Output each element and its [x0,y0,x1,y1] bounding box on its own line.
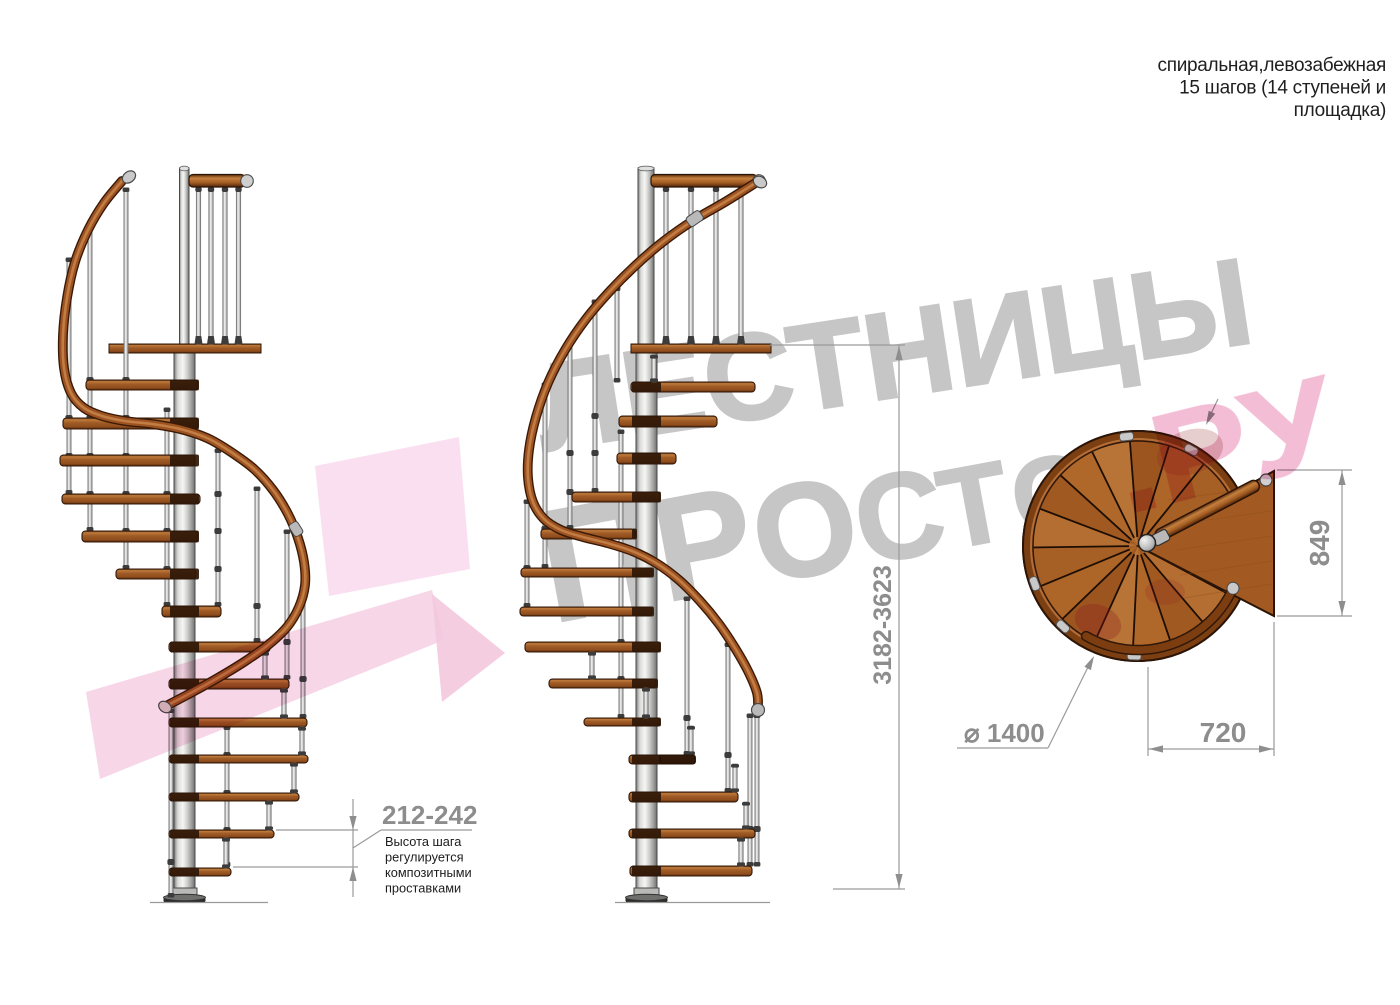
svg-text:площадка): площадка) [1294,100,1386,121]
svg-text:Высота шага: Высота шага [385,834,462,849]
svg-text:3182-3623: 3182-3623 [869,565,897,685]
svg-text:спиральная,левозабежная: спиральная,левозабежная [1158,55,1387,76]
svg-text:720: 720 [1200,717,1247,748]
svg-text:⌀ 1400: ⌀ 1400 [964,718,1045,748]
svg-text:композитными: композитными [385,865,472,880]
svg-text:849: 849 [1304,520,1335,567]
svg-text:15 шагов (14 ступеней и: 15 шагов (14 ступеней и [1179,78,1386,99]
svg-text:212-242: 212-242 [382,800,477,830]
svg-text:регулируется: регулируется [385,850,464,865]
svg-text:проставками: проставками [385,881,461,896]
